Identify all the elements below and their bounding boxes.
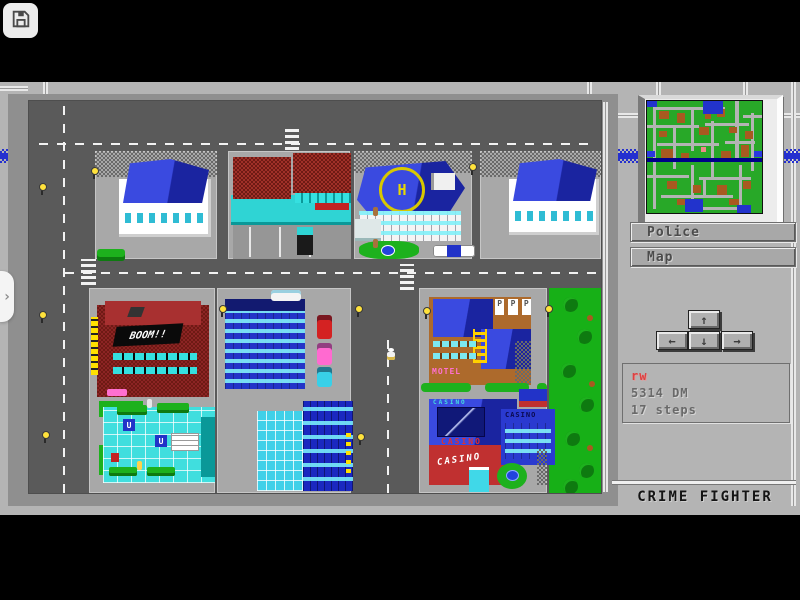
arrow-up-key[interactable]: ↑ [688,310,720,329]
car-green [117,405,147,415]
metro-sign: U [155,435,167,447]
decor-ridge [791,82,796,506]
pedestrian [373,207,378,216]
roof-brick [233,157,291,199]
minimap-road [673,125,676,169]
parking-lot [537,449,547,485]
arrow-left-key[interactable]: ← [656,331,688,350]
game-title: CRIME FIGHTER [612,489,798,505]
crosswalk [285,129,299,150]
street-center-line [39,143,595,145]
parking-pillar: P [522,299,531,315]
disco-sign-text: BOOM!! [129,329,168,342]
building-blue-tower [303,401,353,491]
window-strip [433,353,477,359]
building-disco-topface [105,301,201,325]
side-panel-toggle[interactable]: › [0,271,14,322]
kiosk [519,389,547,407]
city-park [549,288,601,493]
chevron-right-icon: › [3,289,11,305]
map-button-label: Map [647,250,673,265]
casino-wing-text: CASINO [505,411,536,419]
panel-divider [612,480,796,485]
pond-water [506,470,519,481]
street-lamp [39,183,47,191]
tree-trunk-dot [587,315,593,321]
tree [561,363,576,378]
police-button[interactable]: Police [630,222,796,242]
game-screen: H BOOM!! [0,82,800,515]
decor-ridge [743,82,748,96]
street-center-line [63,101,65,493]
tree-trunk-dot [587,445,593,451]
parking-line [249,227,251,257]
metro-sign-u: U [159,437,164,446]
notice-sign [171,433,199,451]
minimap-building [677,199,685,205]
minimap-building [729,127,737,133]
crosswalk [81,259,96,285]
decor-ridge [656,82,661,96]
disco-sign: BOOM!! [113,323,184,346]
city-map-viewport[interactable]: H BOOM!! [28,100,602,494]
arrow-down-icon: ↓ [700,334,707,348]
tree [563,479,578,494]
status-panel: rw 5314 DM 17 steps [622,363,790,423]
minimap-road [739,165,742,209]
tree [579,463,594,478]
crosswalk [400,264,414,290]
casino-billboard [437,407,485,437]
top-chrome-bar [0,0,800,82]
player-character [386,348,395,362]
car-white [271,290,301,301]
map-button[interactable]: Map [630,247,796,267]
police-car-stripe [447,245,461,257]
pedestrian [137,461,142,470]
screenshot-root: H BOOM!! [0,0,800,600]
street-center-line [65,272,601,274]
player-body [387,352,395,360]
tower-lights [346,429,351,473]
market-door [111,453,119,462]
parking-pillar: P [495,299,504,315]
police-button-label: Police [647,225,700,240]
car-green [97,249,125,261]
window-strip [433,341,477,347]
minimap-road [711,121,714,179]
roof-hatch [127,307,145,317]
minimap-road [703,177,706,197]
minimap-building [659,111,669,119]
minimap-river-edge [647,151,655,157]
pedestrian [373,239,378,248]
tree [565,431,580,446]
arrow-up-icon: ↑ [700,313,707,327]
street-lamp [219,305,227,313]
minimap-building [677,113,685,123]
save-button[interactable] [3,3,38,38]
roof-brick [293,153,351,193]
lawn [359,241,419,259]
metro-sign-u: U [127,421,132,430]
arrow-right-icon: → [733,334,740,348]
motel-sign: MOTEL [432,367,461,376]
bottom-chrome-bar [0,515,800,600]
street-lamp [39,311,47,319]
money-readout: 5314 DM [631,385,789,402]
minimap-water [737,205,751,213]
building-police-annex [355,219,381,241]
parking-line [279,227,281,257]
marquee-lights [91,317,98,375]
window-row [125,213,205,223]
lawn-strip [421,383,471,392]
save-icon [10,8,32,34]
window-row [515,211,593,221]
minimap-building [667,181,677,189]
minimap[interactable] [646,100,763,214]
car-black [297,227,313,255]
fountain [381,245,395,256]
minimap-road [691,107,694,151]
parked-car [317,343,332,365]
parked-car [317,367,332,387]
street-lamp [355,305,363,313]
window-strip [113,367,197,374]
minimap-building [717,185,727,195]
parking-pillar: P [508,299,517,315]
street-lamp [357,433,365,441]
minimap-road [661,195,733,198]
tree [563,297,578,312]
minimap-road [699,177,751,180]
decor-ridge [0,86,28,91]
minimap-river [647,158,762,162]
minimap-road [751,113,754,171]
minimap-building [743,181,751,189]
police-car [433,245,475,257]
tree-trunk-dot [589,381,595,387]
metro-sign: U [123,419,135,431]
arrow-down-key[interactable]: ↓ [688,331,720,350]
casino-marquee-text: CASINO [433,399,467,406]
player-name: rw [631,368,789,385]
minimap-building [699,127,709,135]
minimap-building [693,185,701,193]
helipad-h: H [397,181,406,199]
street-lamp [469,163,477,171]
pedestrian [147,399,152,408]
parking-lot [515,341,531,385]
car-pink [107,389,127,396]
minimap-road [657,143,719,146]
car-green [157,403,189,413]
casino-wall-text: CASINO [437,452,482,468]
roof-edge [201,417,215,477]
building-glass-tower [257,411,303,491]
rooftop-parking-sign: P P P [495,299,531,315]
window-strip [113,353,197,360]
awning [295,193,351,203]
minimap-building [741,145,749,157]
minimap-building [659,131,667,137]
minimap-water [703,101,723,114]
helipad: H [379,167,425,213]
tree [577,329,592,344]
street-lamp [423,307,431,315]
parked-car [317,315,332,339]
steps-readout: 17 steps [631,402,789,419]
street-lamp [545,305,553,313]
minimap-water [647,101,657,107]
casino-pond [497,463,527,489]
minimap-river-edge [754,151,762,157]
minimap-building [745,131,753,139]
parking-lot [233,225,351,259]
car-green [109,467,137,476]
car-green [147,467,175,476]
street-lamp [42,431,50,439]
tree [579,397,594,412]
casino-entrance [469,467,489,492]
building-office [225,311,305,389]
arrow-left-icon: ← [668,334,675,348]
minimap-player-marker [701,147,706,152]
decor-ridge [603,102,608,492]
minimap-water [685,199,703,212]
rooftop-shed [431,173,455,190]
arrow-right-key[interactable]: → [721,331,753,350]
street-lamp [91,167,99,175]
